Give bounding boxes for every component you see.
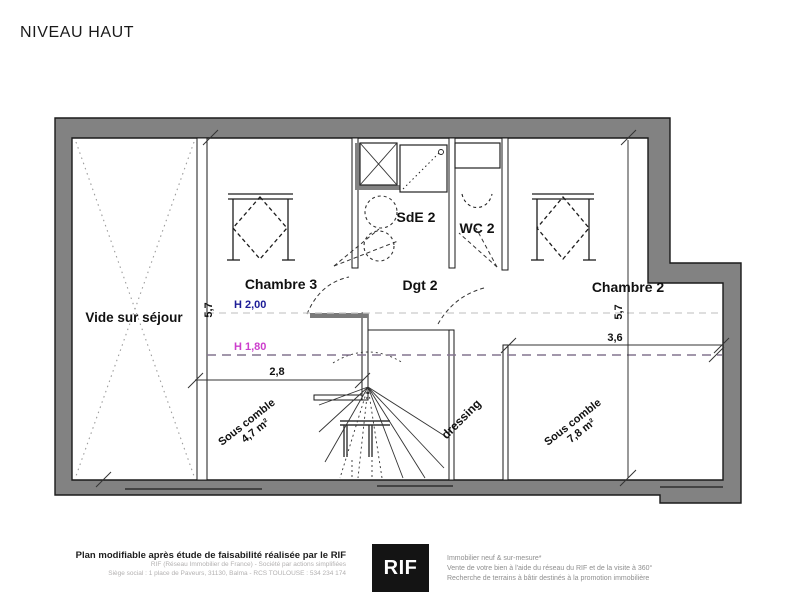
room-label-sde2: SdE 2 (397, 209, 436, 225)
rif-logo: RIF (372, 544, 429, 592)
door-arc (307, 228, 497, 324)
footer-left-block: Plan modifiable après étude de faisabili… (60, 550, 346, 578)
footer-right-block: Immobilier neuf & sur-mesure* Vente de v… (447, 554, 747, 584)
rif-logo-text: RIF (384, 557, 418, 580)
stair-guard-wall (310, 313, 368, 318)
room-label-vide-sejour: Vide sur séjour (85, 310, 183, 325)
washbasin-icon (364, 196, 397, 261)
dim-label-28: 2,8 (269, 366, 284, 378)
room-label-wc2: WC 2 (460, 220, 495, 236)
footer-disclaimer: Plan modifiable après étude de faisabili… (60, 550, 346, 561)
height-label-h200: H 2,00 (234, 299, 266, 311)
footer-service-line2: Vente de votre bien à l'aide du réseau d… (447, 564, 747, 574)
footer-service-line3: Recherche de terrains à bâtir destinés à… (447, 574, 747, 584)
floor-plan-canvas: Vide sur séjour Chambre 3 Chambre 2 SdE … (0, 0, 800, 600)
room-label-chambre3: Chambre 3 (245, 276, 318, 292)
toilet-icon (455, 143, 500, 208)
room-label-dgt2: Dgt 2 (403, 277, 438, 293)
footer-company-line1: RIF (Réseau Immobilier de France) - Soci… (60, 561, 346, 570)
bed-icon (531, 194, 596, 260)
bed-icon (227, 194, 295, 260)
room-label-chambre2: Chambre 2 (592, 279, 665, 295)
height-label-h180: H 1,80 (234, 341, 266, 353)
void-cross-icon (76, 142, 194, 476)
dim-label-right-vertical: 5,7 (613, 304, 625, 319)
closet-icon (400, 145, 447, 192)
room-label-dressing: dressing (439, 397, 484, 442)
dim-label-36: 3,6 (607, 332, 622, 344)
footer: Plan modifiable après étude de faisabili… (0, 538, 800, 600)
room-label-sous-comble-right: Sous comble 7,8 m² (542, 395, 613, 458)
footer-company-line2: Siège social : 1 place de Paveurs, 31130… (60, 570, 346, 579)
dim-label-left-vertical: 5,7 (203, 302, 215, 317)
room-label-sous-comble-left: Sous comble 4,7 m² (216, 395, 287, 458)
stairs-icon (319, 352, 448, 479)
footer-service-line1: Immobilier neuf & sur-mesure* (447, 554, 747, 564)
shower-icon (355, 143, 401, 190)
